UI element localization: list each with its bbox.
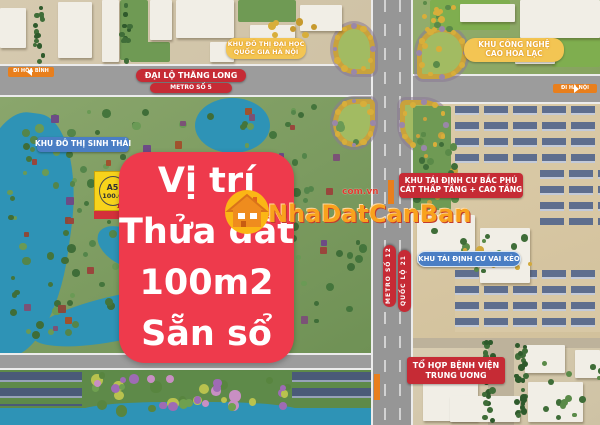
label-line: TỔ HỢP BỆNH VIỆN bbox=[413, 361, 499, 370]
housing-rows bbox=[292, 372, 371, 402]
housing-rows bbox=[0, 372, 82, 406]
label-line: CÁT THẤP TẦNG + CAO TẦNG bbox=[400, 186, 522, 195]
road-label-metro-5: METRO SỐ 5 bbox=[150, 83, 232, 93]
roundabout bbox=[417, 27, 467, 79]
area-label-university: KHU ĐÔ THỊ ĐẠI HỌC QUỐC GIA HÀ NỘI bbox=[226, 38, 306, 59]
green-patch bbox=[238, 0, 296, 22]
building bbox=[0, 8, 26, 48]
direction-label: ĐI HÒA BÌNH bbox=[13, 69, 49, 75]
direction-badge-ha-noi: ĐI HÀ NỘI bbox=[553, 84, 597, 93]
housing-rows bbox=[455, 106, 600, 164]
street-name-strip bbox=[374, 374, 380, 400]
building bbox=[102, 0, 119, 62]
road-label-quoc-lo-21: QUỐC LỘ 21 bbox=[398, 250, 411, 312]
building bbox=[300, 5, 342, 31]
building bbox=[150, 0, 172, 40]
direction-badge-hoa-binh: ĐI HÒA BÌNH bbox=[8, 67, 54, 77]
building bbox=[520, 0, 600, 38]
pond bbox=[195, 98, 270, 153]
housing-rows bbox=[540, 170, 600, 225]
building bbox=[460, 4, 515, 22]
area-label-vai-keo: KHU TÁI ĐỊNH CƯ VAI KÈO bbox=[417, 251, 521, 267]
area-label-eco-urban: KHU ĐÔ THỊ SINH THÁI bbox=[37, 137, 129, 152]
house-logo-icon bbox=[224, 189, 270, 235]
watermark-brand: NhaDatCanBan bbox=[268, 200, 471, 228]
overlay-line-area: 100m2 bbox=[140, 258, 274, 309]
resettlement-divider-road bbox=[413, 338, 600, 348]
area-label-hospital: TỔ HỢP BỆNH VIỆN TRUNG ƯƠNG bbox=[407, 357, 505, 384]
area-label-tech-park: KHU CÔNG NGHỆ CAO HÒA LẠC bbox=[464, 38, 564, 62]
building bbox=[575, 350, 600, 378]
area-label-bac-phu-cat: KHU TÁI ĐỊNH CƯ BẮC PHÚ CÁT THẤP TẦNG + … bbox=[399, 173, 523, 198]
overlay-line-deed: Sẵn sổ bbox=[141, 309, 272, 360]
label-line: CAO HÒA LẠC bbox=[485, 50, 542, 59]
label-line: QUỐC GIA HÀ NỘI bbox=[234, 49, 299, 56]
roundabout bbox=[333, 24, 375, 74]
building bbox=[525, 345, 565, 373]
direction-label: ĐI HÀ NỘI bbox=[561, 86, 589, 92]
green-patch bbox=[130, 42, 170, 62]
road-label-metro-12: METRO SỐ 12 bbox=[383, 245, 396, 307]
building bbox=[58, 2, 92, 58]
watermark-domain: com.vn bbox=[342, 187, 379, 197]
label-line: TRUNG ƯƠNG bbox=[425, 371, 486, 380]
plot-code: A5 bbox=[107, 183, 119, 192]
master-plan-map: ĐI HÒA BÌNH ĐẠI LỘ THĂNG LONG METRO SỐ 5… bbox=[0, 0, 600, 425]
building bbox=[176, 0, 234, 38]
watermark: NhaDatCanBan com.vn bbox=[224, 183, 404, 243]
road-label-thang-long: ĐẠI LỘ THĂNG LONG bbox=[136, 69, 246, 82]
